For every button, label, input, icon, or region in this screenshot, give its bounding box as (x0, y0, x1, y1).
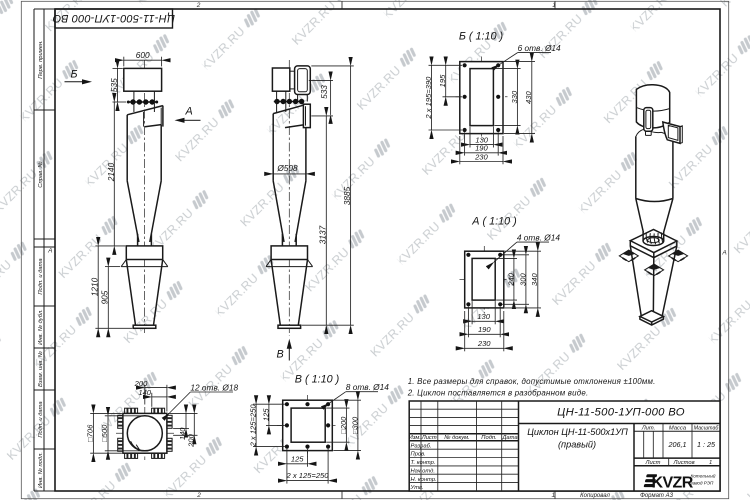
svg-text:Подп. и дата: Подп. и дата (38, 401, 44, 438)
svg-text:Ø508: Ø508 (276, 163, 298, 173)
svg-text:8 отв. Ø14: 8 отв. Ø14 (346, 382, 389, 392)
svg-text:Циклон ЦН-11-500х1УП: Циклон ЦН-11-500х1УП (527, 427, 628, 437)
svg-text:Перв. примен.: Перв. примен. (38, 40, 44, 79)
svg-text:125: 125 (291, 455, 304, 464)
svg-text:200: 200 (187, 433, 196, 447)
svg-text:1 : 25: 1 : 25 (697, 440, 716, 449)
svg-text:Масса: Масса (669, 426, 687, 432)
svg-text:Б: Б (71, 69, 78, 81)
svg-text:2: 2 (196, 492, 201, 499)
svg-text:2 x 125=250: 2 x 125=250 (285, 471, 329, 480)
svg-text:Изм.: Изм. (409, 435, 421, 441)
svg-text:535: 535 (109, 78, 119, 92)
svg-text:завод РЭП: завод РЭП (690, 481, 715, 486)
svg-text:□200: □200 (339, 416, 348, 434)
svg-text:600: 600 (136, 50, 150, 60)
svg-text:Лист: Лист (421, 435, 437, 441)
svg-text:Лист: Лист (645, 460, 661, 466)
svg-text:Справ. №: Справ. № (38, 161, 44, 187)
svg-text:Инв. № подл.: Инв. № подл. (38, 452, 44, 488)
svg-text:206,1: 206,1 (668, 440, 687, 449)
svg-text:130: 130 (477, 312, 490, 321)
svg-text:Котельный: Котельный (691, 473, 716, 479)
svg-text:Формат А3: Формат А3 (640, 493, 673, 499)
svg-text:1: 1 (551, 492, 555, 499)
svg-text:195: 195 (438, 74, 447, 87)
svg-text:А: А (47, 248, 52, 255)
svg-text:230: 230 (474, 152, 488, 161)
svg-text:Н. контр.: Н. контр. (411, 477, 437, 483)
svg-text:Пров.: Пров. (411, 452, 426, 458)
svg-text:140: 140 (138, 388, 151, 397)
svg-text:Лит.: Лит. (641, 426, 656, 432)
svg-text:200: 200 (134, 379, 148, 388)
svg-text:6 отв. Ø14: 6 отв. Ø14 (518, 43, 561, 53)
svg-text:Разраб.: Разраб. (411, 443, 432, 449)
svg-text:Подп.: Подп. (481, 435, 496, 441)
svg-text:□500: □500 (100, 424, 109, 442)
svg-text:Инв. № дубл.: Инв. № дубл. (38, 309, 44, 345)
svg-text:12 отв. Ø18: 12 отв. Ø18 (190, 382, 238, 392)
svg-text:Копировал: Копировал (580, 493, 610, 499)
svg-text:125: 125 (261, 408, 270, 421)
svg-text:□706: □706 (86, 424, 95, 442)
svg-text:1. Все размеры для справок, до: 1. Все размеры для справок, допустимые о… (408, 377, 656, 386)
svg-text:(правый): (правый) (558, 440, 596, 450)
svg-text:В: В (277, 349, 284, 361)
svg-text:А ( 1:10 ): А ( 1:10 ) (471, 216, 516, 228)
svg-text:Нач.отд.: Нач.отд. (411, 468, 435, 474)
svg-text:Масштаб: Масштаб (694, 426, 720, 432)
svg-text:№ докум.: № докум. (444, 435, 470, 441)
svg-text:533: 533 (319, 85, 329, 99)
svg-text:330: 330 (510, 90, 519, 103)
svg-text:2. Циклон поставляется в разоб: 2. Циклон поставляется в разобранном вид… (407, 389, 589, 398)
svg-text:Листов: Листов (673, 460, 695, 466)
svg-text:Т. контр.: Т. контр. (411, 460, 436, 466)
svg-text:230: 230 (477, 339, 491, 348)
svg-text:300: 300 (518, 272, 527, 285)
svg-text:А: А (721, 250, 726, 257)
svg-text:3885: 3885 (342, 186, 352, 205)
svg-text:905: 905 (100, 290, 110, 304)
svg-text:□300: □300 (350, 416, 359, 434)
svg-text:1: 1 (552, 2, 556, 9)
svg-text:190: 190 (478, 325, 491, 334)
svg-text:2140: 2140 (106, 162, 116, 182)
svg-text:ЦН-11-500-1УП-000 ВО: ЦН-11-500-1УП-000 ВО (557, 407, 685, 419)
svg-text:340: 340 (530, 272, 539, 285)
svg-text:2: 2 (196, 2, 201, 9)
svg-text:В ( 1:10 ): В ( 1:10 ) (295, 374, 339, 386)
svg-text:3137: 3137 (318, 225, 328, 244)
svg-text:2 x 125=250: 2 x 125=250 (249, 404, 258, 448)
svg-text:4 отв. Ø14: 4 отв. Ø14 (517, 232, 560, 242)
svg-text:430: 430 (524, 90, 533, 103)
svg-text:1210: 1210 (90, 277, 100, 296)
svg-text:KVZR: KVZR (652, 474, 694, 491)
svg-text:Дата: Дата (501, 435, 518, 441)
svg-text:Взам. инв. №: Взам. инв. № (38, 351, 44, 387)
svg-text:ЦН-11-500-1УП-000 ВО: ЦН-11-500-1УП-000 ВО (52, 12, 175, 24)
svg-text:190: 190 (475, 144, 488, 153)
svg-text:Утв.: Утв. (410, 485, 424, 491)
svg-text:А: А (185, 106, 193, 118)
svg-text:1: 1 (709, 460, 712, 466)
svg-text:240: 240 (506, 272, 515, 286)
svg-text:2 x 195=390: 2 x 195=390 (424, 76, 433, 120)
svg-text:Б ( 1:10 ): Б ( 1:10 ) (459, 31, 503, 43)
svg-text:Подп. и дата: Подп. и дата (38, 258, 44, 295)
